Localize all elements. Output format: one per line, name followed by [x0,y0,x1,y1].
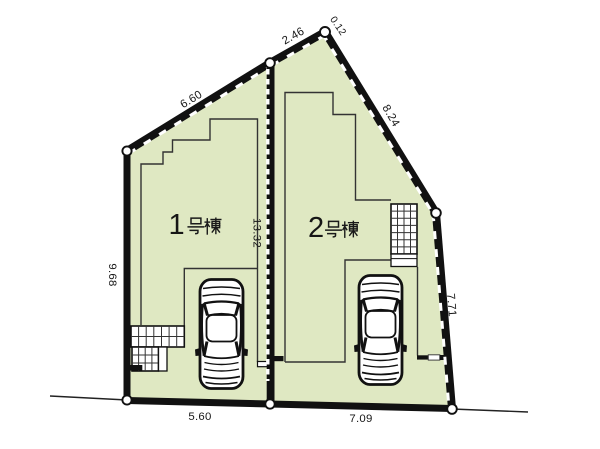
svg-text:9.68: 9.68 [106,263,118,286]
svg-text:13.32: 13.32 [251,218,263,248]
svg-text:7.71: 7.71 [444,293,458,317]
svg-text:2: 2 [308,212,324,244]
svg-text:1: 1 [169,209,185,241]
svg-text:7.09: 7.09 [349,413,372,425]
svg-text:5.60: 5.60 [188,411,211,423]
